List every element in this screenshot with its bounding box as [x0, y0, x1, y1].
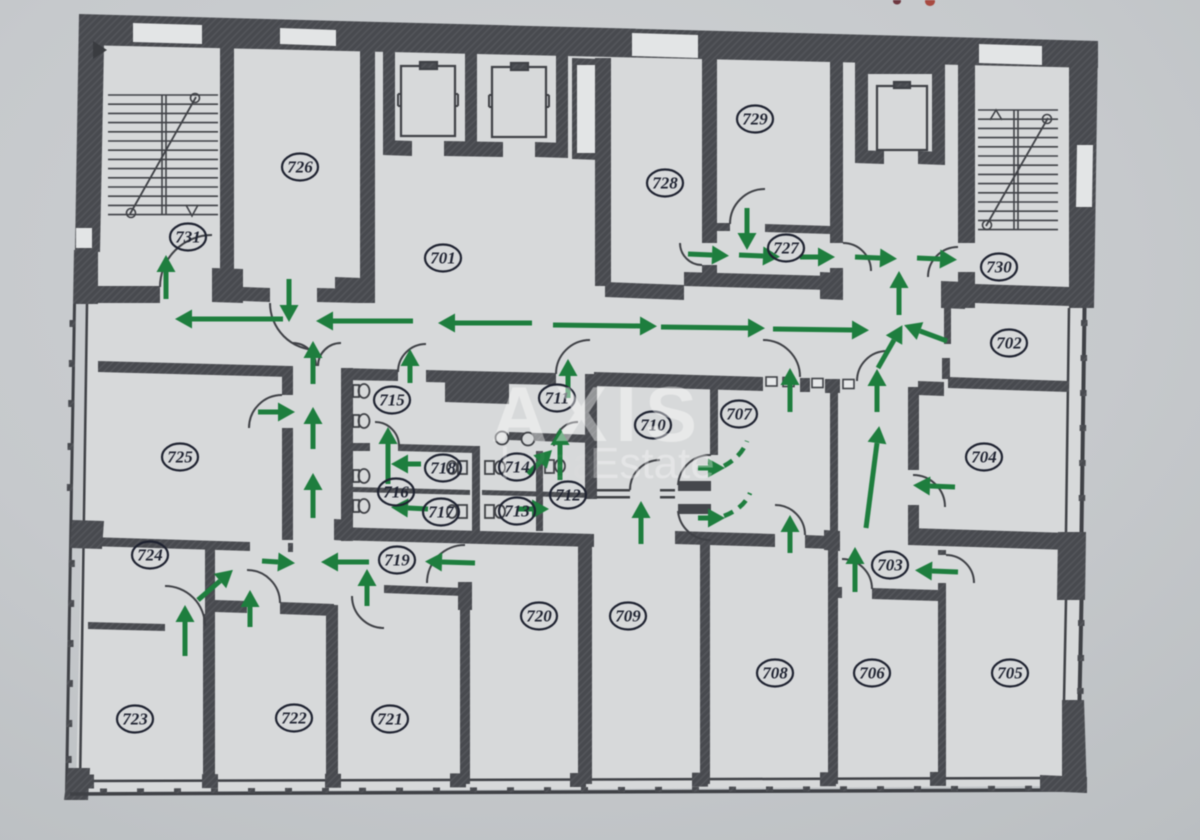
- svg-text:707: 707: [726, 405, 753, 424]
- svg-text:701: 701: [430, 249, 456, 268]
- svg-text:729: 729: [742, 110, 768, 129]
- svg-text:725: 725: [167, 448, 193, 467]
- svg-text:723: 723: [122, 710, 148, 729]
- svg-text:720: 720: [526, 607, 552, 626]
- svg-text:l: l: [500, 439, 510, 488]
- svg-text:731: 731: [175, 228, 201, 247]
- svg-text:709: 709: [615, 607, 641, 626]
- svg-text:Estate: Estate: [590, 439, 715, 488]
- svg-text:703: 703: [877, 556, 903, 575]
- svg-text:724: 724: [137, 546, 163, 565]
- svg-text:713: 713: [504, 502, 530, 521]
- svg-text:730: 730: [986, 258, 1012, 277]
- svg-text:721: 721: [377, 710, 403, 729]
- svg-text:704: 704: [971, 448, 997, 467]
- svg-text:705: 705: [997, 664, 1023, 683]
- svg-text:712: 712: [555, 486, 581, 505]
- svg-text:Rea: Rea: [516, 439, 597, 488]
- svg-text:716: 716: [383, 483, 409, 502]
- svg-text:727: 727: [773, 239, 800, 258]
- svg-text:702: 702: [996, 334, 1022, 353]
- svg-text:726: 726: [287, 158, 313, 177]
- svg-text:706: 706: [859, 664, 885, 683]
- svg-text:728: 728: [652, 174, 678, 193]
- svg-text:708: 708: [762, 664, 788, 683]
- svg-text:717: 717: [428, 503, 455, 522]
- svg-text:715: 715: [379, 391, 405, 410]
- svg-text:722: 722: [281, 709, 307, 728]
- svg-text:719: 719: [384, 551, 410, 570]
- svg-text:718: 718: [430, 459, 456, 478]
